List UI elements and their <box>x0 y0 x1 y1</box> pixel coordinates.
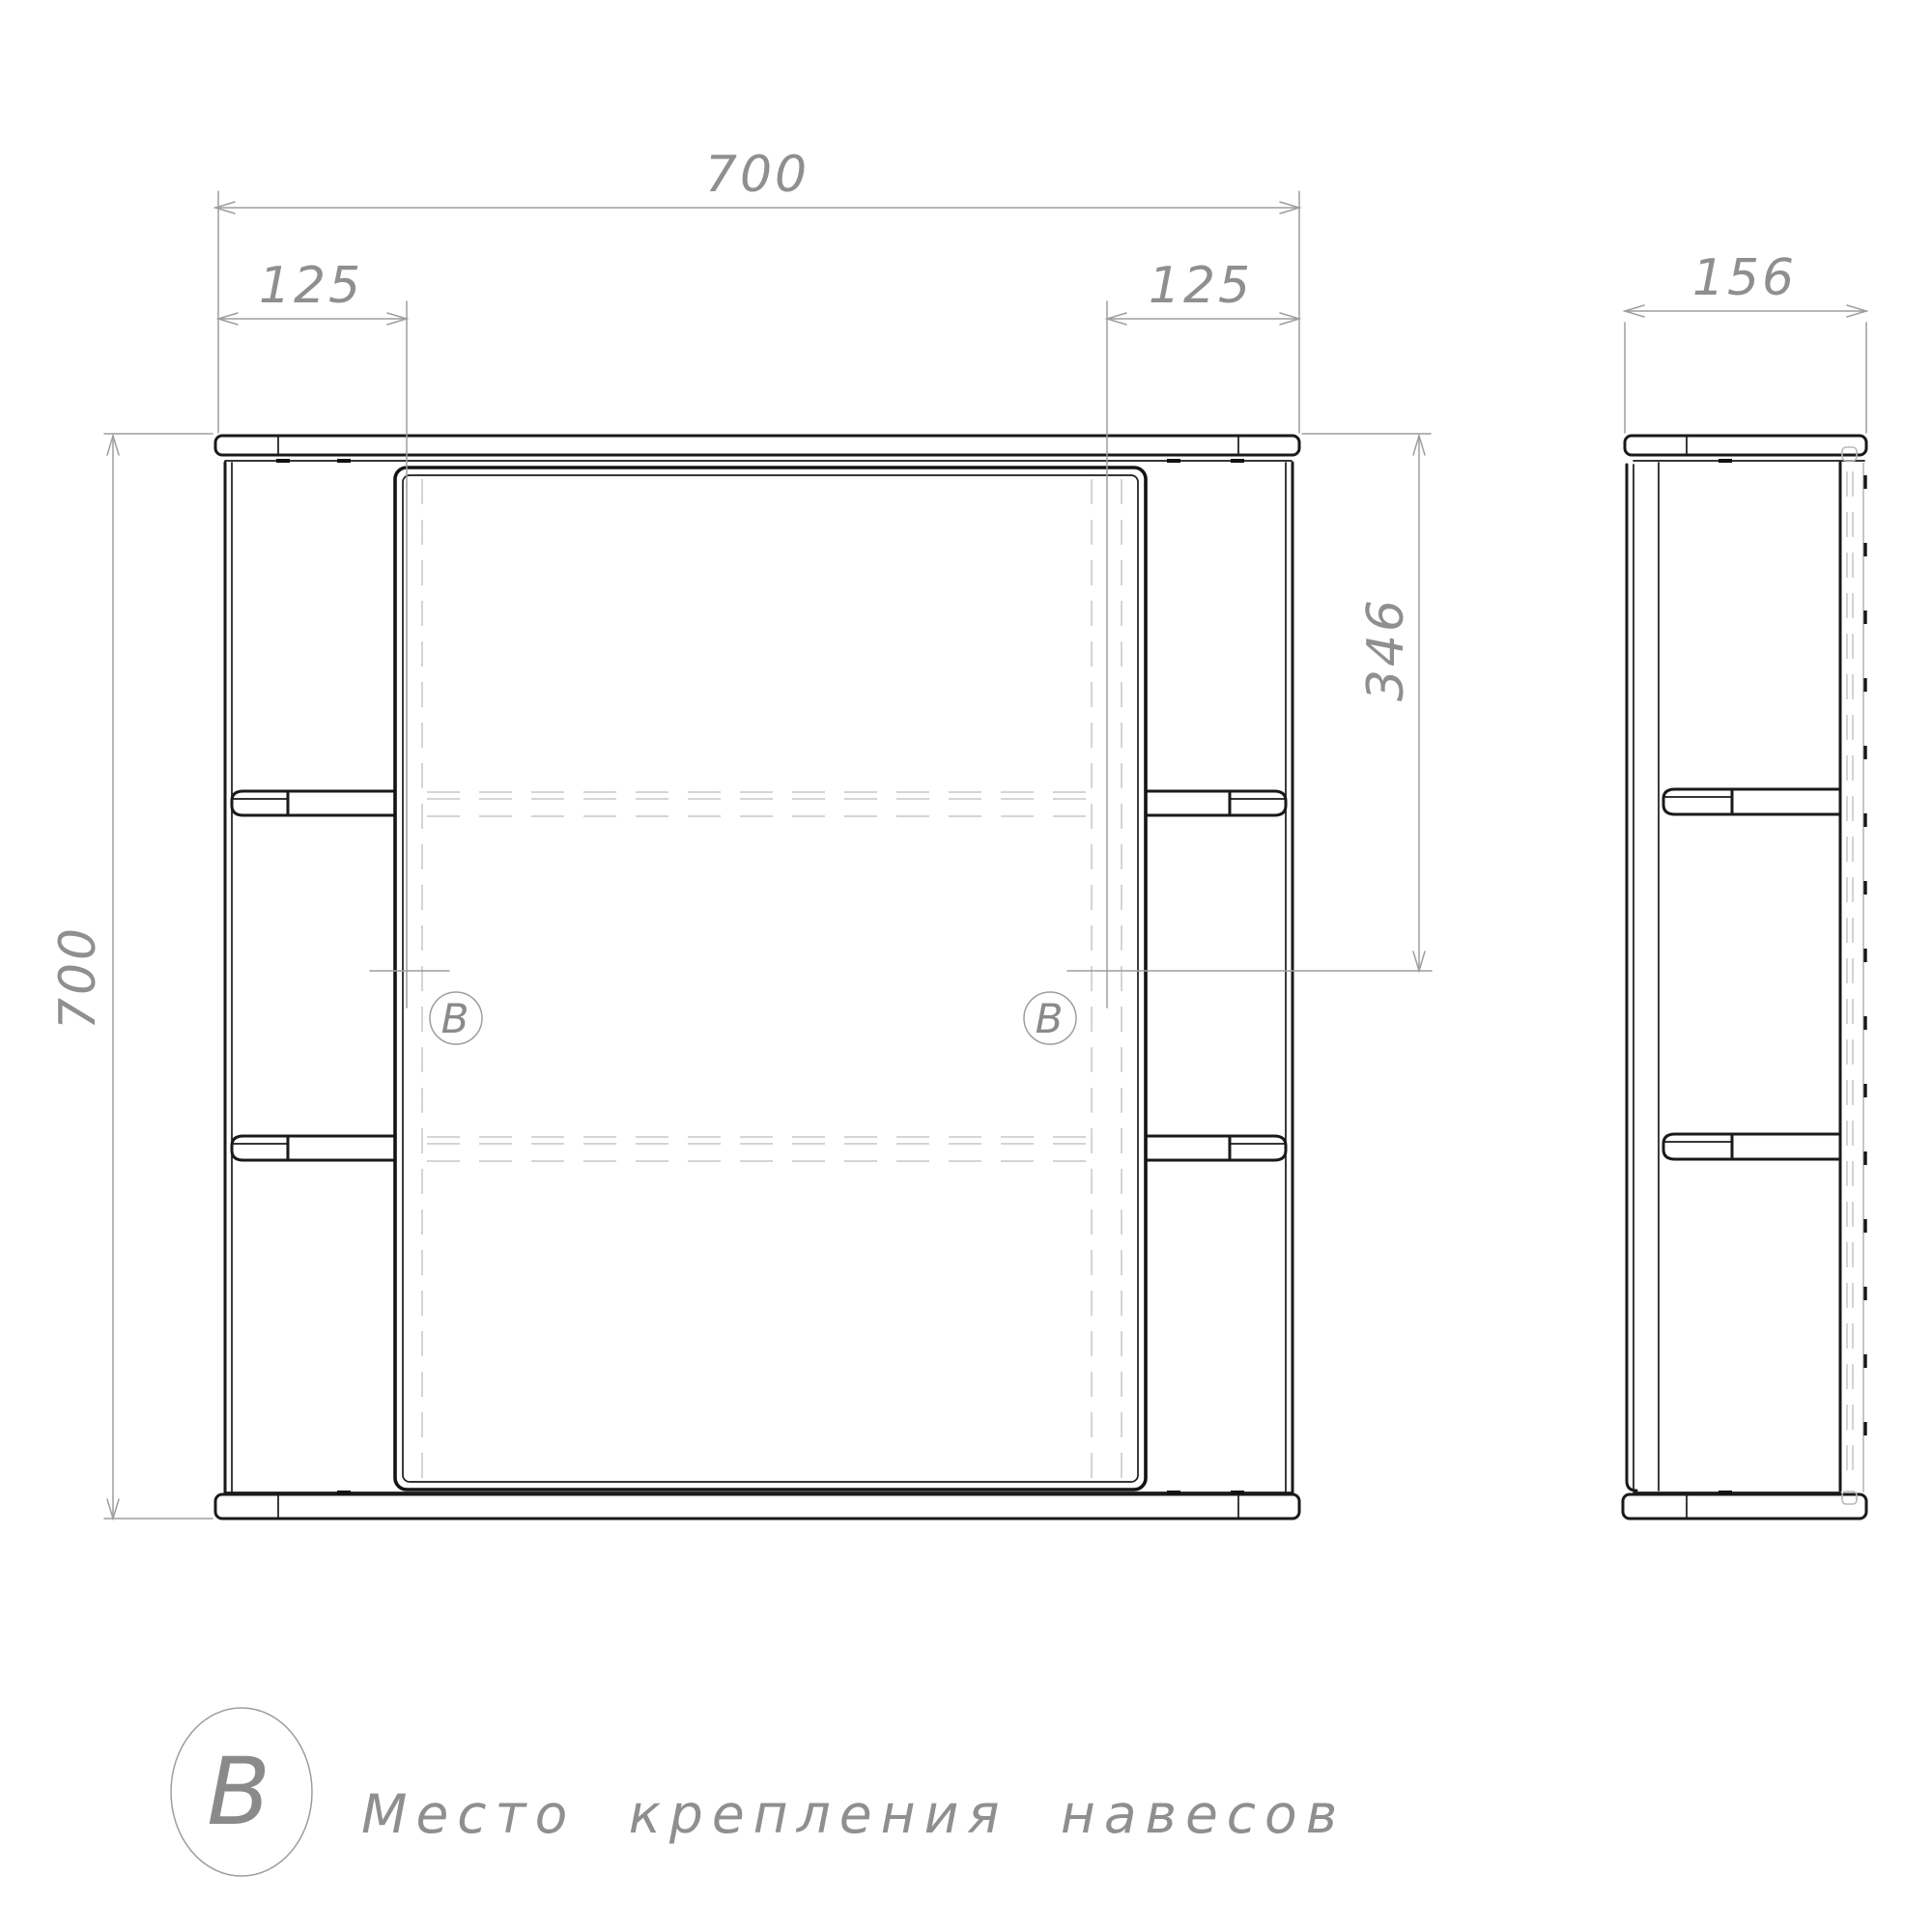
dim-label-depth: 156 <box>1692 249 1797 307</box>
mirror-door-inner <box>403 475 1138 1482</box>
side-top-panel <box>1625 436 1866 455</box>
dim-label-width: 700 <box>705 146 810 204</box>
shelf-outline <box>1663 789 1840 814</box>
shelf-outline <box>232 791 395 815</box>
dim-depth-156: 156 <box>1625 249 1866 433</box>
side-shelf-bottom <box>1663 1134 1840 1159</box>
side-shelf-top <box>1663 789 1840 814</box>
shelf-outline <box>1146 791 1286 815</box>
dim-mount-height-346: 346 <box>1302 434 1431 971</box>
drawing-canvas: 700 125 125 156 700 <box>0 0 1932 1932</box>
side-back-panel-outer <box>1627 465 1636 1491</box>
marker-letter: B <box>1036 995 1064 1042</box>
shelf-outline <box>1146 1136 1286 1160</box>
front-left-shelf-top <box>232 791 395 815</box>
front-right-shelf-bottom <box>1146 1136 1286 1160</box>
front-top-panel <box>215 436 1299 455</box>
side-bottom-panel <box>1623 1494 1866 1519</box>
shelf-outline <box>1663 1134 1840 1159</box>
dim-label-height: 700 <box>49 925 107 1030</box>
front-left-shelf-bottom <box>232 1136 395 1160</box>
legend-label: Место крепления навесов <box>361 1783 1346 1845</box>
mirror-door-outer <box>395 468 1146 1490</box>
legend-symbol: B <box>207 1738 270 1846</box>
marker-letter: B <box>441 995 469 1042</box>
dim-label-left-offset: 125 <box>259 257 363 315</box>
dim-label-right-offset: 125 <box>1149 257 1253 315</box>
mount-marker-right: B <box>1024 971 1432 1044</box>
front-view <box>215 436 1299 1519</box>
front-bottom-panel <box>215 1494 1299 1519</box>
front-right-shelf-top <box>1146 791 1286 815</box>
mount-marker-left: B <box>370 971 482 1044</box>
shelf-outline <box>232 1136 395 1160</box>
dim-right-offset-125: 125 <box>1107 257 1299 1008</box>
dim-left-offset-125: 125 <box>218 257 407 1008</box>
legend: B Место крепления навесов <box>171 1708 1346 1876</box>
technical-drawing-page: 700 125 125 156 700 <box>0 0 1932 1932</box>
dim-width-700: 700 <box>215 146 1299 433</box>
side-view <box>1623 436 1866 1519</box>
dim-height-700: 700 <box>49 434 213 1519</box>
dim-label-mount-height: 346 <box>1357 597 1415 701</box>
